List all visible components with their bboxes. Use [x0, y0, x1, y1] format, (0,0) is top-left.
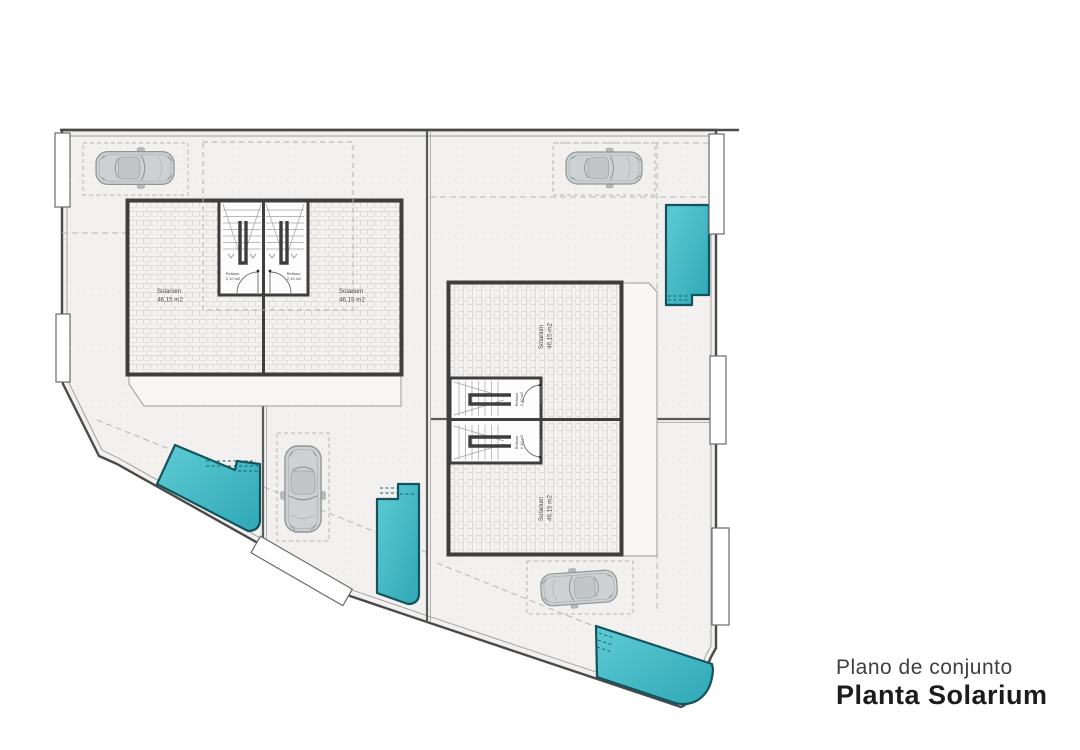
boundary-pillar	[712, 528, 729, 625]
building-1: Rellano 2,10 m2 Rellano 2,10 m2 Sola	[128, 201, 402, 375]
boundary-pillar	[710, 356, 726, 444]
label-landing-2: Rellano 2,10 m2	[287, 271, 302, 281]
label-landing-4: Rellano 2,10 m2	[514, 434, 524, 449]
plan-title: Planta Solarium	[836, 680, 1048, 711]
boundary-pillar	[56, 314, 70, 382]
pool-unit-2	[377, 484, 419, 604]
car-unit-3	[566, 148, 642, 188]
label-landing-1: Rellano 2,10 m2	[226, 271, 241, 281]
boundary-pillar	[55, 133, 70, 207]
pool-unit-3	[666, 205, 709, 305]
plan-subtitle: Plano de conjunto	[836, 656, 1048, 680]
building-2: Rellano 2,10 m2 Rellano 2,10 m2 Solarium	[449, 283, 622, 555]
label-landing-3: Rellano 2,10 m2	[514, 391, 524, 406]
label-solarium-2: Solarium 46,15 m2	[339, 288, 366, 304]
car-unit-1	[96, 148, 174, 189]
terrace-building-1	[129, 375, 401, 406]
label-solarium-3: Solarium 46,15 m2	[538, 323, 554, 350]
car-unit-2	[281, 446, 326, 532]
label-solarium-4: Solarium 46,15 m2	[538, 495, 554, 522]
terrace-building-2	[621, 283, 657, 556]
boundary-pillar	[709, 134, 724, 234]
label-solarium-1: Solarium 46,15 m2	[157, 288, 184, 304]
title-block: Plano de conjunto Planta Solarium	[836, 656, 1048, 711]
site-plan-sheet: Rellano 2,10 m2 Rellano 2,10 m2 Sola	[0, 0, 1080, 750]
site-plan-drawing: Rellano 2,10 m2 Rellano 2,10 m2 Sola	[0, 0, 1080, 750]
